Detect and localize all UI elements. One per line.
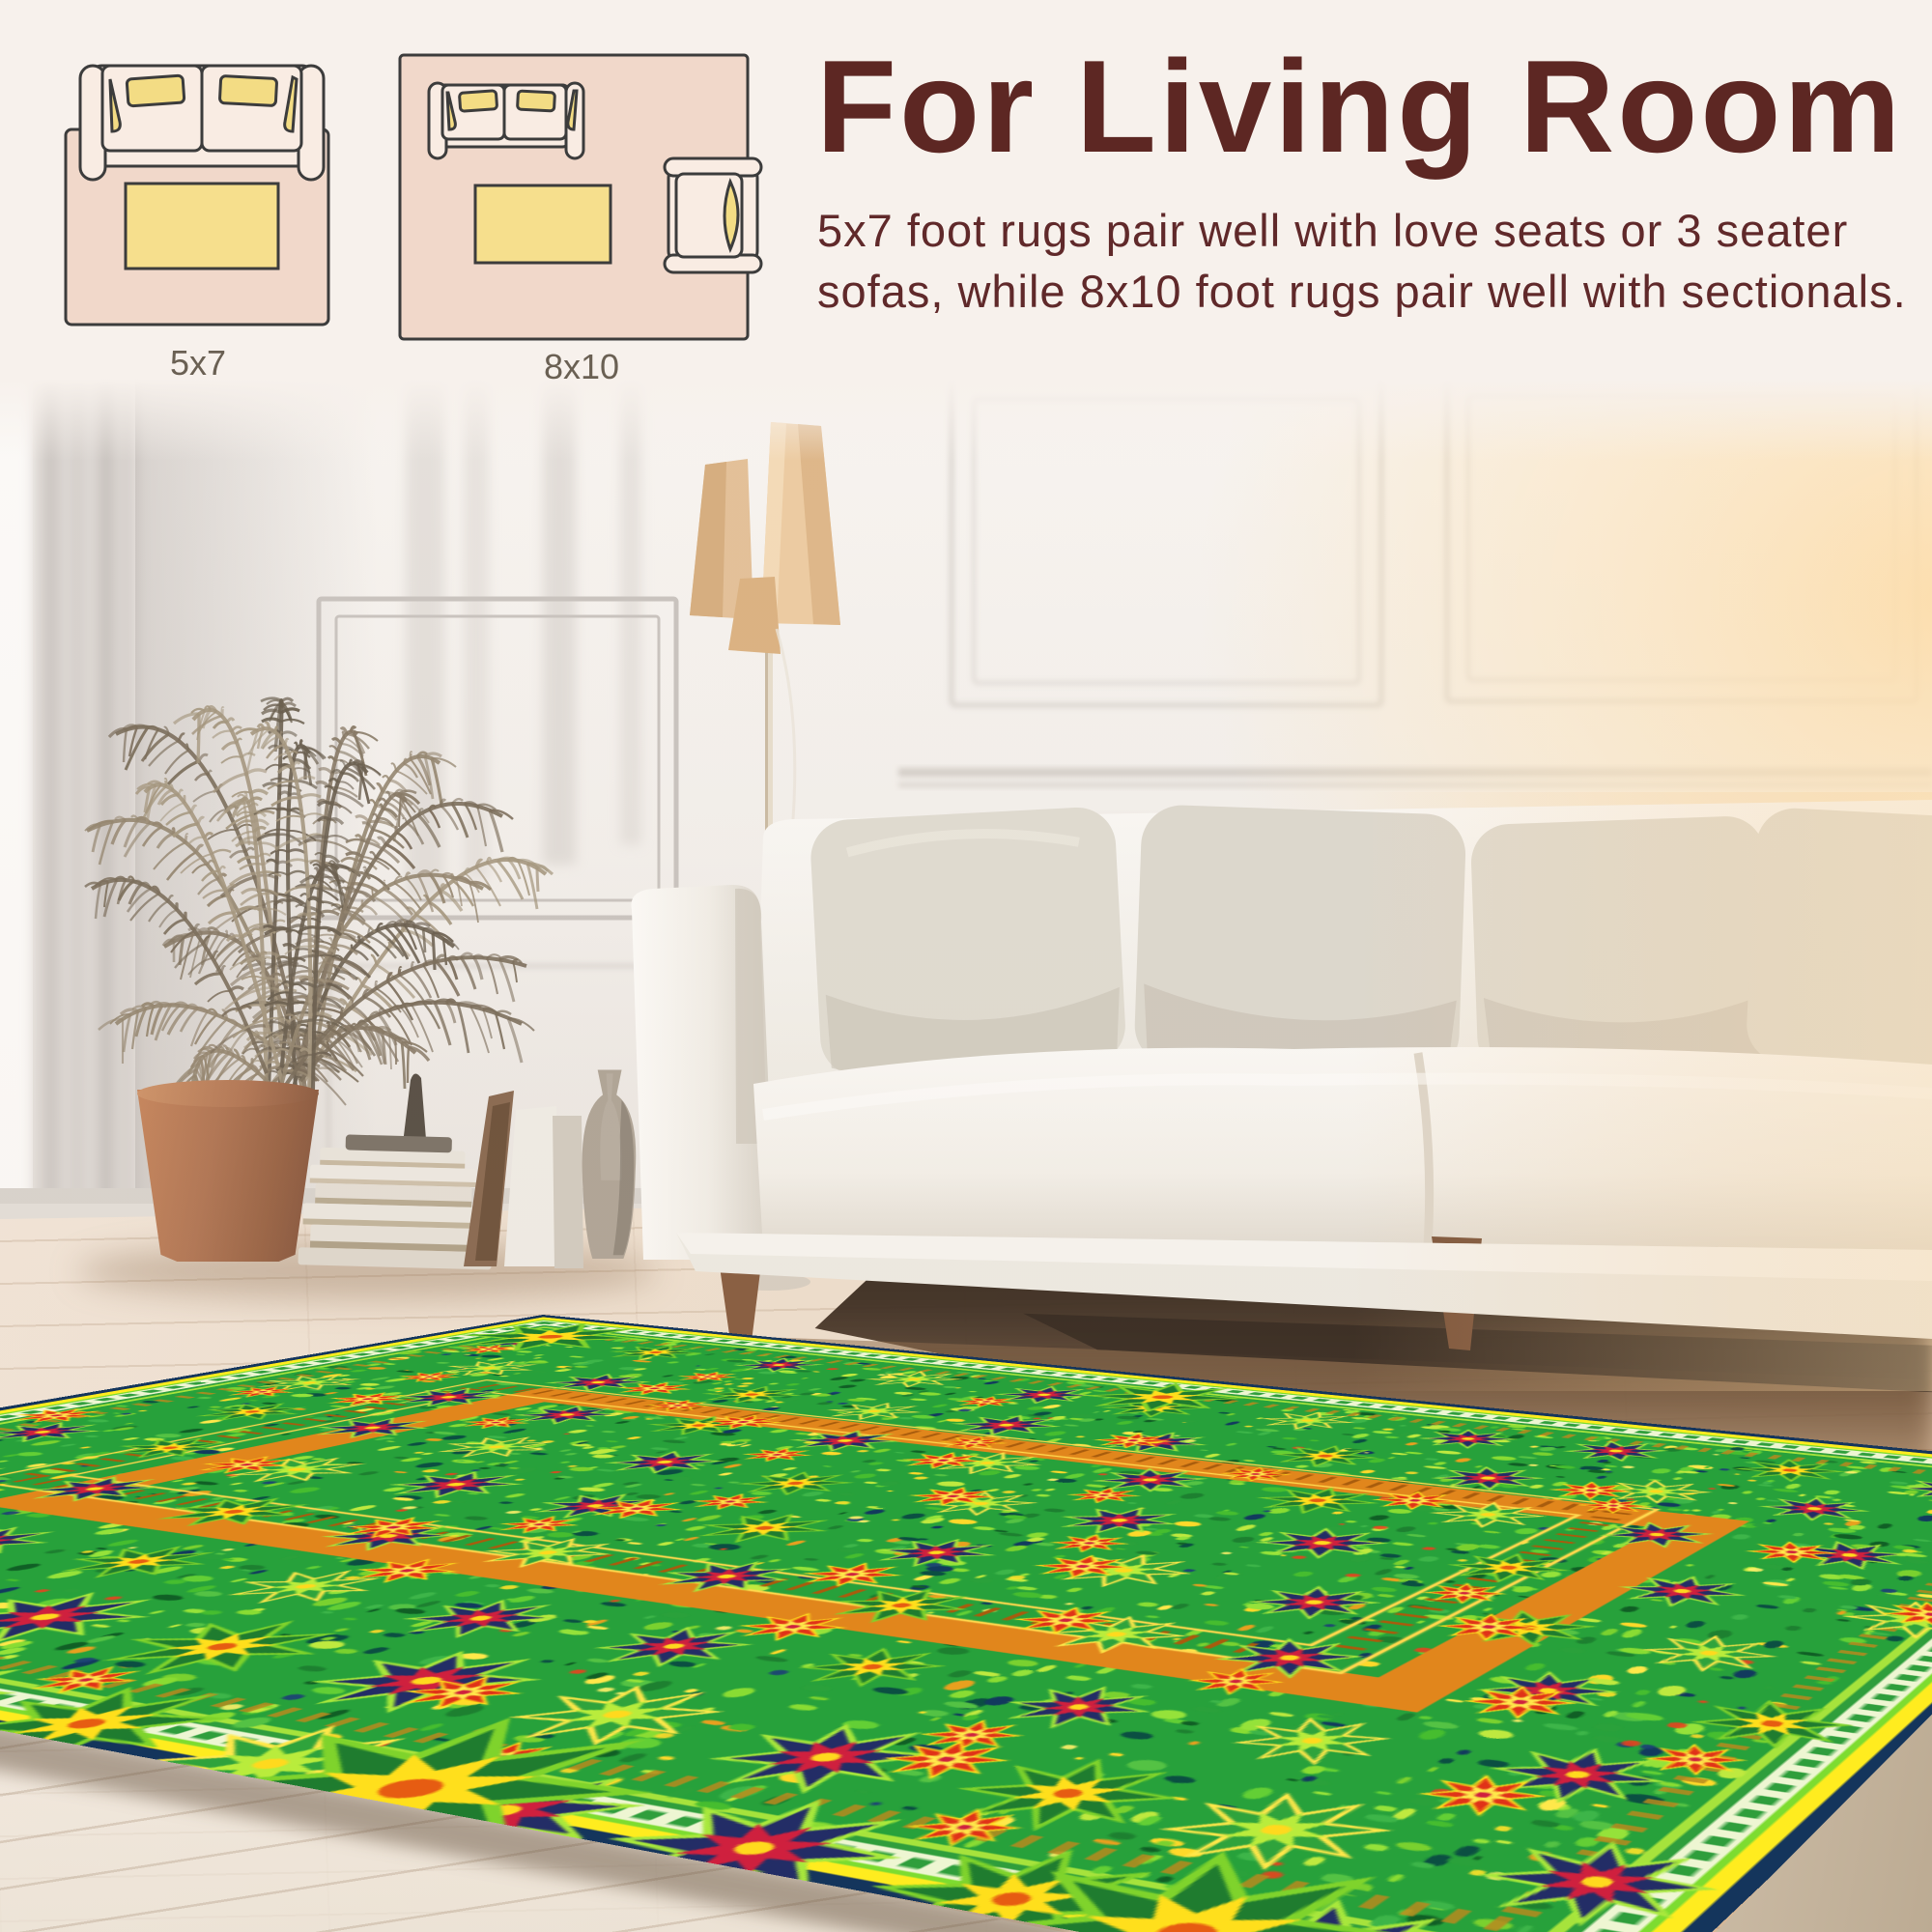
svg-text:5x7: 5x7 — [170, 343, 226, 383]
svg-text:8x10: 8x10 — [544, 347, 619, 386]
